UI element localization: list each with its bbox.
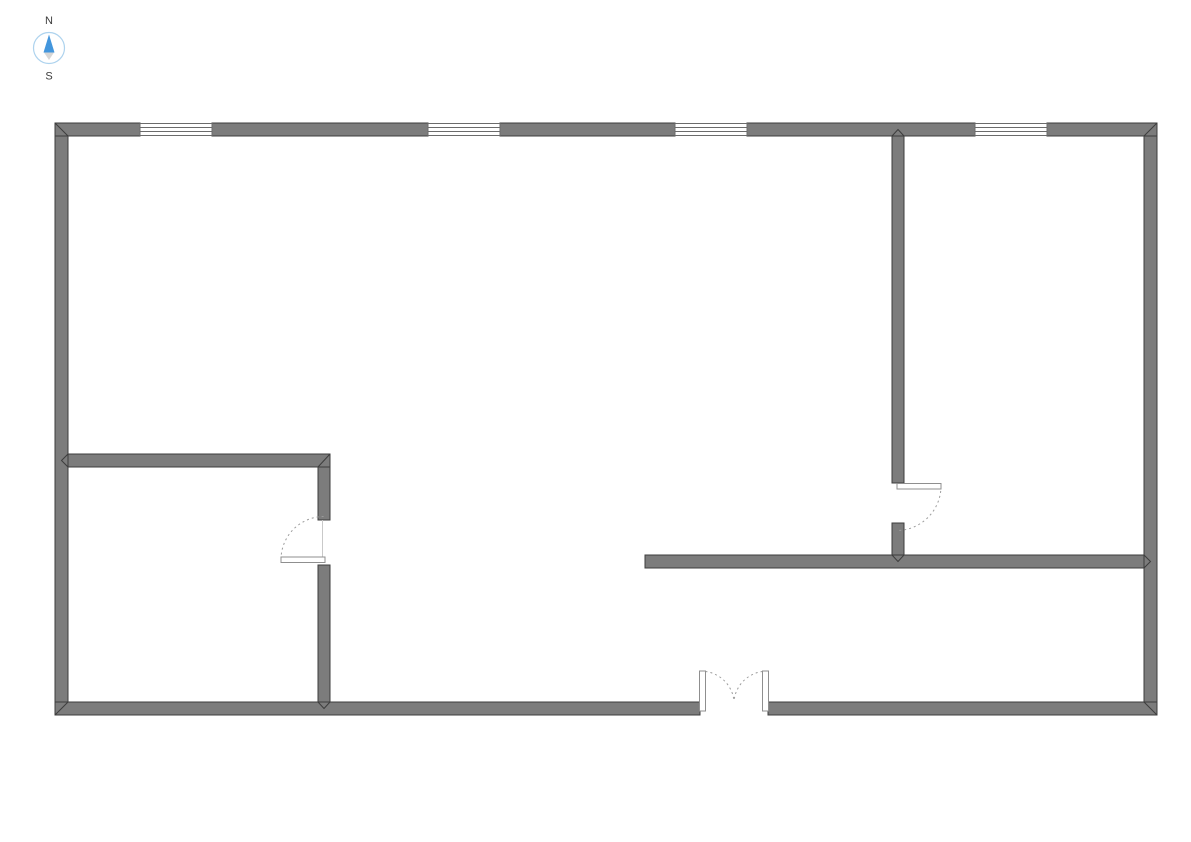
- exterior-wall-top-segment-1: [55, 123, 140, 136]
- entrance-double-door-swing-arc: [734, 672, 763, 702]
- interior-door-leaf: [897, 484, 941, 490]
- window-symbol: [975, 124, 1047, 136]
- interior-wall-vertical-lower: [892, 523, 904, 555]
- room-wall-east-lower: [318, 565, 330, 702]
- interior-wall-horizontal: [645, 555, 1144, 568]
- exterior-wall-top-segment-2: [212, 123, 428, 136]
- compass-rose: N S: [34, 15, 65, 83]
- compass-north-label: N: [45, 15, 53, 27]
- exterior-wall-top-segment-5: [1047, 123, 1157, 136]
- compass-north-needle-icon: [44, 35, 55, 53]
- compass-south-label: S: [45, 71, 52, 83]
- exterior-wall-bottom-segment-left: [55, 702, 700, 715]
- window-symbol: [428, 124, 500, 136]
- entrance-double-door-leaf: [763, 671, 769, 711]
- interior-wall-vertical-upper: [892, 136, 904, 483]
- window-symbol: [140, 124, 212, 136]
- window-symbol: [675, 124, 747, 136]
- room-wall-top: [68, 454, 330, 467]
- floor-plan-canvas: N S: [0, 0, 1191, 842]
- exterior-wall-left: [55, 123, 68, 715]
- room-door-leaf: [281, 557, 325, 563]
- room-door-swing-arc: [281, 517, 324, 560]
- exterior-wall-bottom-segment-right: [768, 702, 1157, 715]
- floor-plan-page: N S: [0, 0, 1191, 842]
- compass-south-needle-icon: [44, 53, 54, 61]
- exterior-wall-top-segment-4: [747, 123, 975, 136]
- entrance-double-door-swing-arc: [706, 672, 735, 702]
- floor-plan-drawing: [55, 123, 1157, 715]
- exterior-wall-top-segment-3: [500, 123, 675, 136]
- exterior-wall-right: [1144, 123, 1157, 715]
- entrance-double-door-leaf: [700, 671, 706, 711]
